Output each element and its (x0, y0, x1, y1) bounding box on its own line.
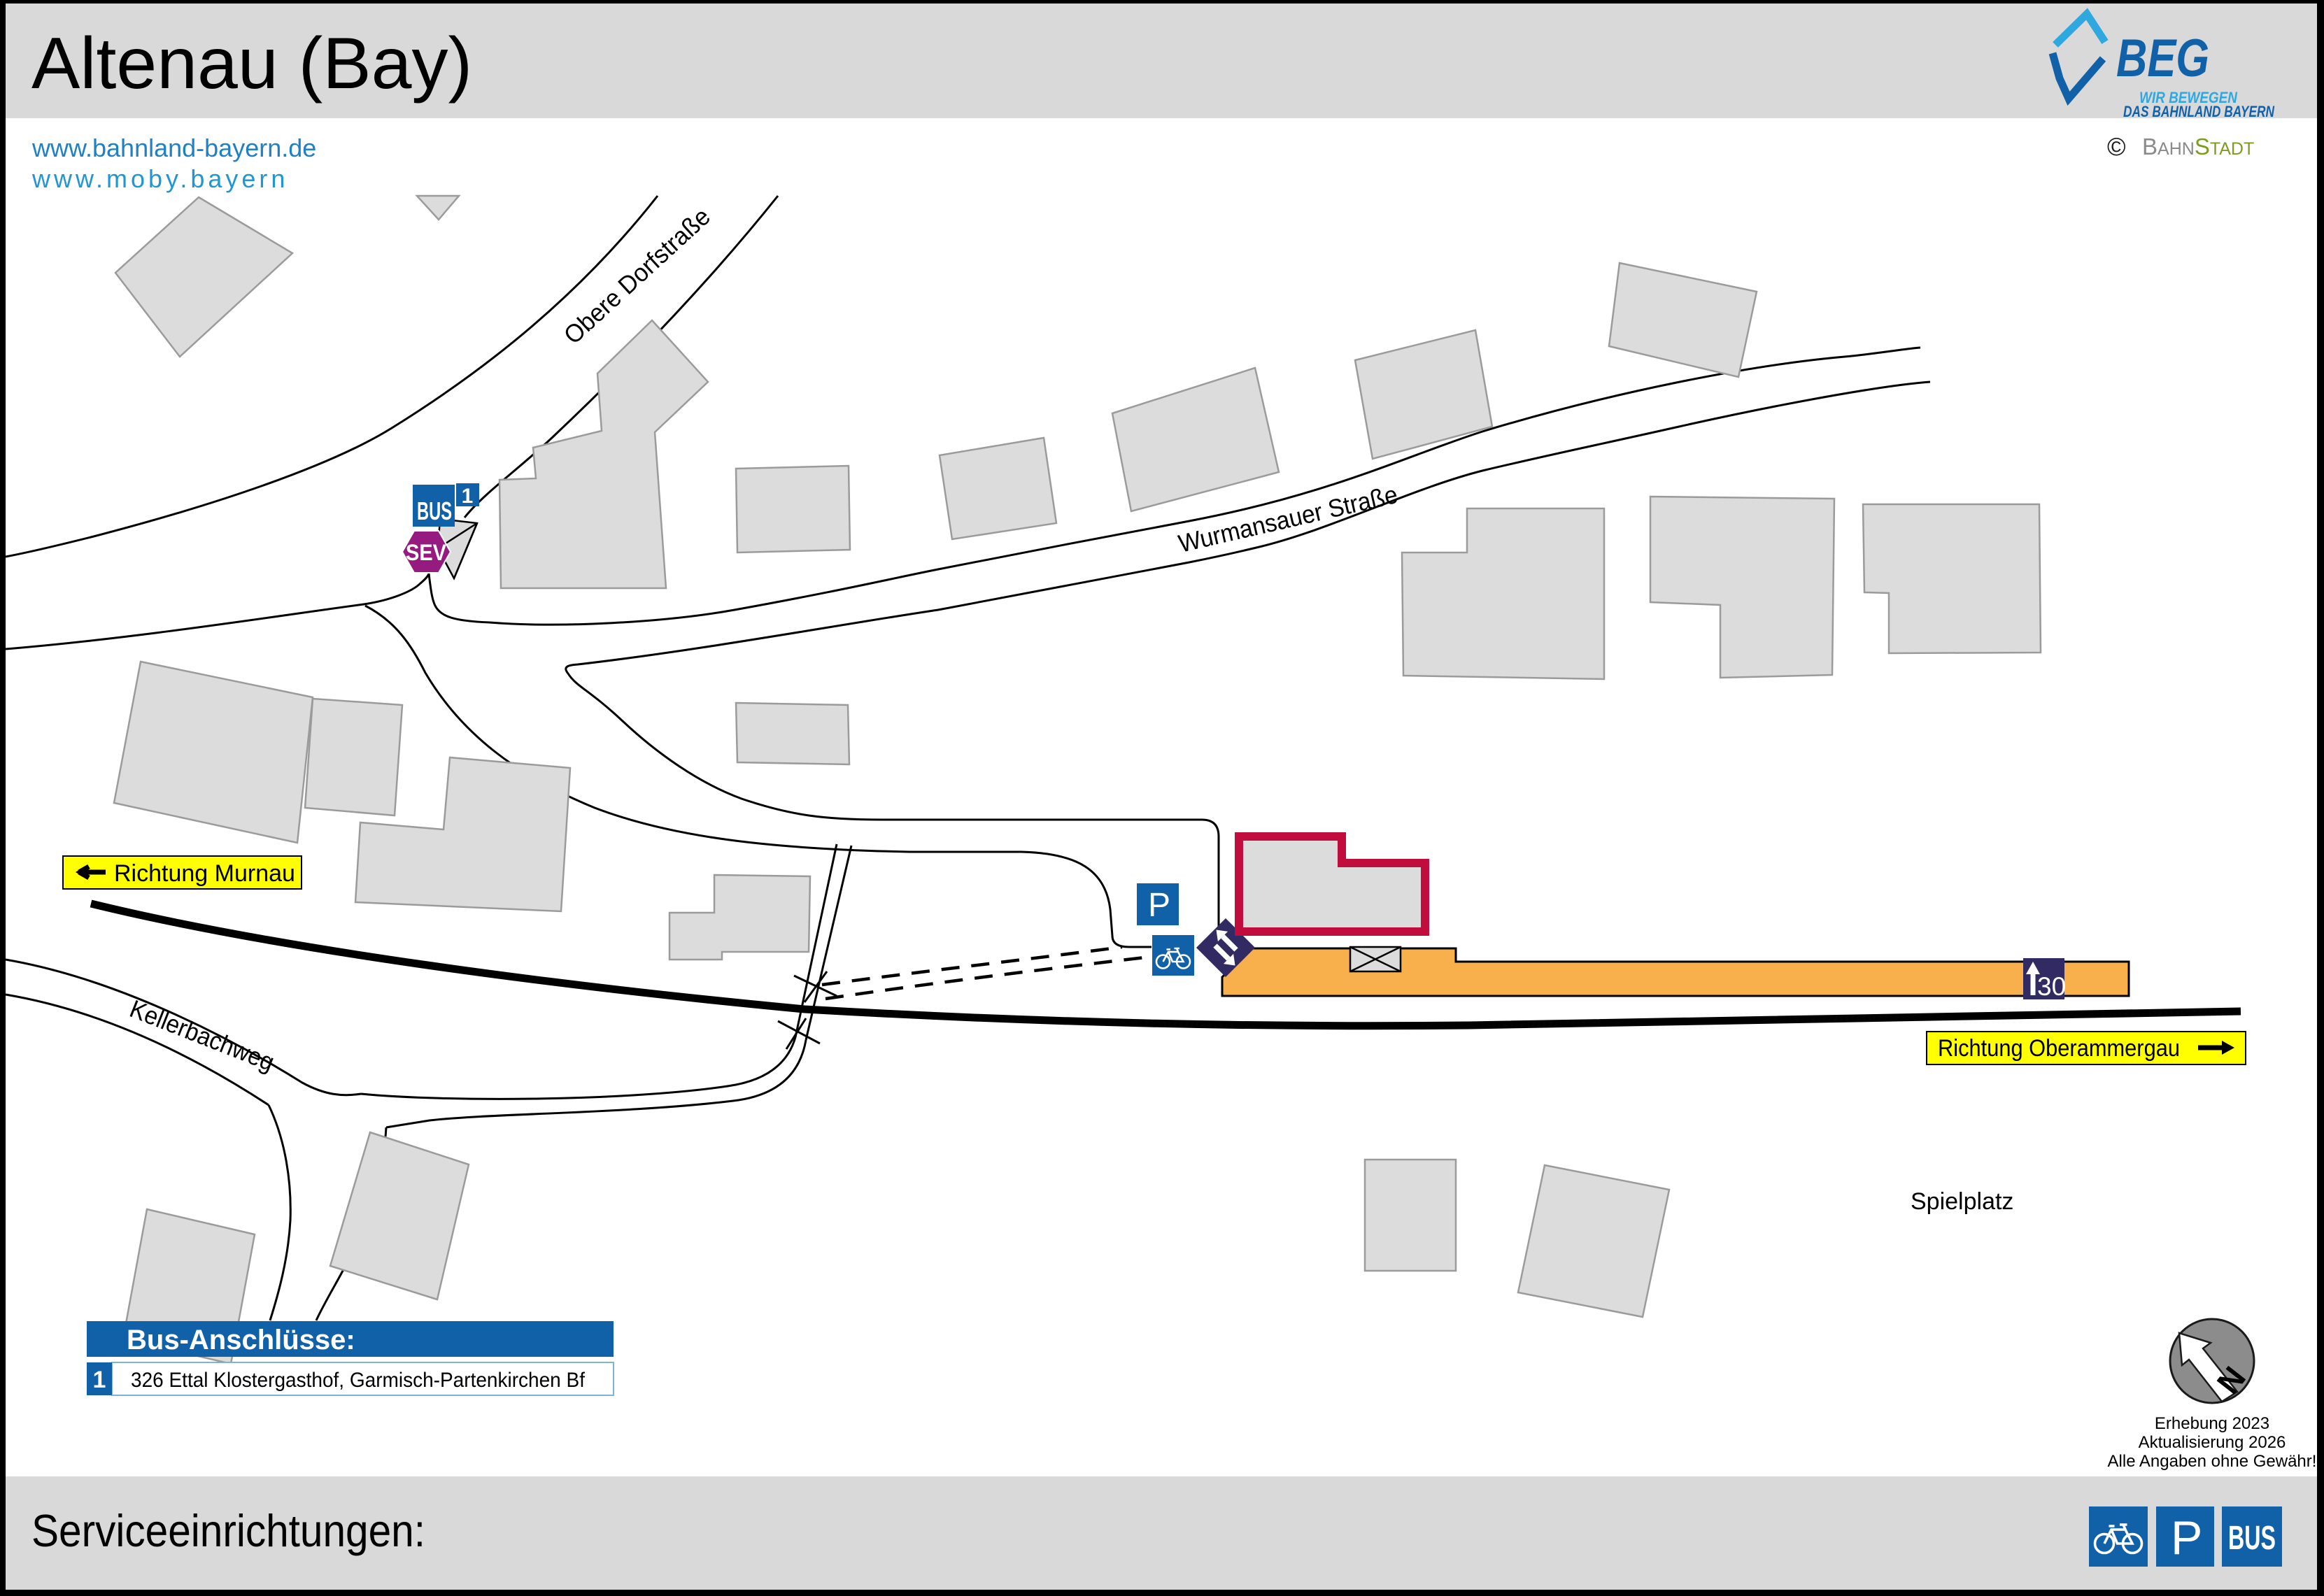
svg-text:326 Ettal Klostergasthof, Garm: 326 Ettal Klostergasthof, Garmisch-Parte… (131, 1369, 586, 1392)
svg-text:Serviceeinrichtungen:: Serviceeinrichtungen: (31, 1505, 425, 1556)
svg-text:1: 1 (93, 1367, 106, 1393)
svg-text:DAS BAHNLAND BAYERN: DAS BAHNLAND BAYERN (2123, 103, 2275, 120)
svg-text:www.bahnland-bayern.de: www.bahnland-bayern.de (31, 134, 316, 162)
svg-text:Altenau (Bay): Altenau (Bay) (31, 23, 472, 104)
svg-text:Bus-Anschlüsse:: Bus-Anschlüsse: (127, 1325, 355, 1355)
svg-text:Richtung Oberammergau: Richtung Oberammergau (1938, 1035, 2180, 1062)
svg-text:Richtung Murnau: Richtung Murnau (114, 860, 295, 887)
svg-text:Erhebung 2023: Erhebung 2023 (2155, 1414, 2269, 1433)
svg-text:BUS: BUS (417, 497, 452, 525)
svg-text:P: P (2171, 1511, 2202, 1565)
svg-text:P: P (1148, 887, 1170, 924)
svg-text:Aktualisierung 2026: Aktualisierung 2026 (2139, 1433, 2286, 1452)
svg-text:BUS: BUS (2228, 1520, 2276, 1557)
svg-text:30: 30 (2037, 972, 2066, 1001)
svg-text:Alle Angaben ohne Gewähr!: Alle Angaben ohne Gewähr! (2108, 1452, 2317, 1471)
svg-text:www.moby.bayern: www.moby.bayern (31, 164, 288, 193)
svg-text:SEV: SEV (406, 540, 447, 565)
svg-text:BEG: BEG (2116, 29, 2209, 88)
svg-text:©: © (2107, 132, 2126, 161)
svg-text:1: 1 (462, 485, 474, 508)
svg-text:Spielplatz: Spielplatz (1911, 1188, 2013, 1215)
